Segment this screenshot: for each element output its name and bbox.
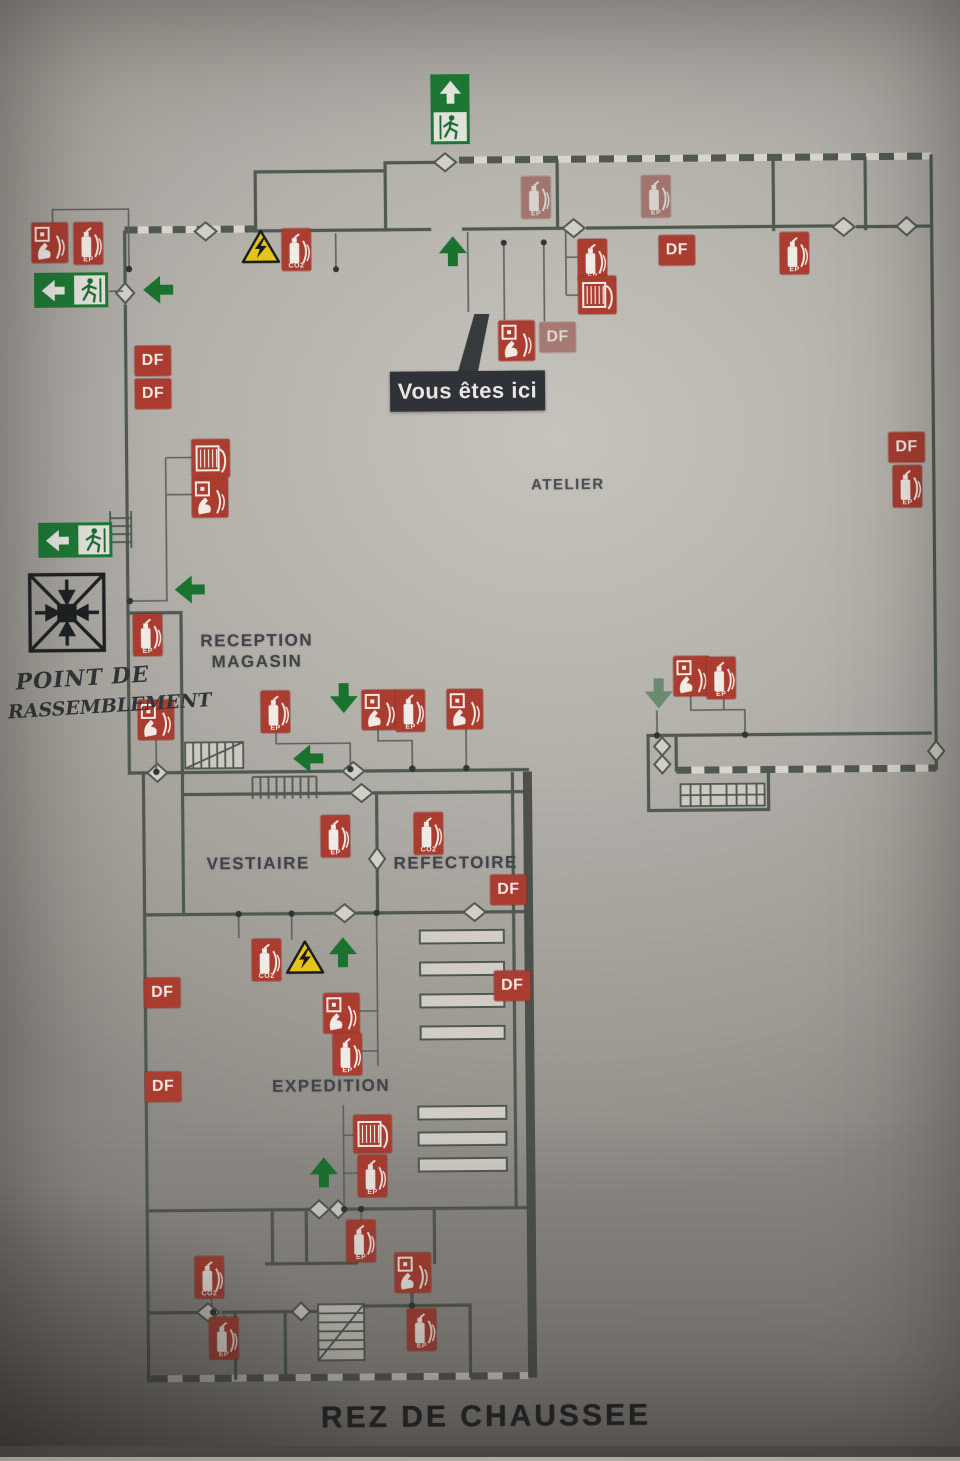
extinguisher-type-label: CO2 [282, 262, 311, 269]
fire-door-df-badge: DF [539, 322, 575, 352]
call-point-glyph [447, 689, 483, 729]
hose-reel-glyph [191, 439, 229, 477]
arrow-glyph [642, 676, 676, 710]
assembly-point-icon [25, 569, 110, 656]
call-point-glyph [362, 690, 398, 730]
manual-call-point-icon [673, 656, 709, 696]
fire-extinguisher-icon: EP [578, 239, 607, 281]
manual-call-point-icon [323, 993, 359, 1033]
evacuation-arrow [642, 676, 676, 710]
df-label: DF [501, 977, 523, 995]
df-label: DF [497, 881, 519, 899]
room-label-vestiaire: VESTIAIRE [193, 853, 323, 874]
manual-call-point-icon [447, 689, 483, 729]
extinguisher-type-label: EP [358, 1189, 387, 1196]
marker-layer: DF DF DF DF DF DF DF DF DF [0, 0, 960, 1461]
electrical-hazard-icon [285, 939, 325, 975]
room-label-reception-magasin: RECEPTION MAGASIN [174, 629, 339, 672]
extinguisher-type-label: EP [780, 266, 809, 273]
room-label-atelier: ATELIER [498, 476, 638, 494]
call-point-glyph [498, 321, 534, 361]
df-label: DF [546, 328, 568, 346]
exit-arrow-up-icon [430, 74, 469, 109]
call-point-glyph [32, 223, 68, 263]
fire-hose-reel-icon [191, 439, 229, 477]
fire-extinguisher-icon: EP [209, 1317, 238, 1359]
manual-call-point-icon [395, 1252, 431, 1292]
arrow-glyph [291, 741, 325, 775]
call-point-glyph [192, 477, 228, 517]
fire-door-df-badge: DF [888, 432, 924, 462]
fire-extinguisher-icon: EP [133, 614, 162, 656]
manual-call-point-icon [362, 690, 398, 730]
call-point-glyph [673, 656, 709, 696]
arrow-glyph [436, 234, 470, 268]
fire-extinguisher-icon: EP [407, 1308, 436, 1350]
extinguisher-type-label: EP [209, 1351, 238, 1358]
fire-door-df-badge: DF [135, 379, 171, 409]
fire-door-df-badge: DF [144, 978, 180, 1008]
electrical-hazard-icon [241, 229, 281, 265]
fire-door-df-badge: DF [659, 235, 695, 265]
hose-reel-glyph [578, 276, 616, 314]
arrow-glyph [141, 273, 175, 307]
fire-door-df-badge: DF [135, 346, 171, 376]
extinguisher-type-label: CO2 [195, 1290, 224, 1297]
df-label: DF [142, 385, 164, 403]
you-are-here-badge: Vous êtes ici [390, 370, 545, 411]
room-label-reception-line2: MAGASIN [174, 650, 339, 672]
fire-extinguisher-icon: EP [358, 1155, 387, 1197]
exit-arrow-left-icon [38, 523, 75, 558]
fire-extinguisher-icon: EP [396, 689, 425, 731]
evacuation-arrow [173, 572, 207, 606]
extinguisher-type-label: EP [641, 209, 670, 216]
hose-reel-glyph [353, 1115, 391, 1153]
call-point-glyph [323, 993, 359, 1033]
co2-extinguisher-icon: CO2 [282, 228, 311, 270]
fire-extinguisher-icon: EP [780, 232, 809, 274]
df-label: DF [666, 241, 688, 259]
fire-extinguisher-icon: EP [641, 175, 670, 217]
room-label-reception-line1: RECEPTION [174, 629, 339, 651]
df-label: DF [142, 352, 164, 370]
extinguisher-type-label: EP [261, 725, 290, 732]
manual-call-point-icon [192, 477, 228, 517]
extinguisher-type-label: EP [347, 1254, 376, 1261]
fire-extinguisher-icon: EP [346, 1220, 375, 1262]
extinguisher-type-label: EP [521, 210, 550, 217]
co2-extinguisher-icon: CO2 [195, 1256, 224, 1298]
emergency-exit-sign-left [34, 272, 108, 311]
df-label: DF [152, 1078, 174, 1096]
call-point-glyph [395, 1252, 431, 1292]
extinguisher-type-label: EP [707, 691, 736, 698]
extinguisher-type-label: EP [893, 499, 922, 506]
manual-call-point-icon [32, 223, 68, 263]
fire-hose-reel-icon [578, 276, 616, 314]
evacuation-arrow [141, 273, 175, 307]
manual-call-point-icon [498, 321, 534, 361]
exit-arrow-left-icon [34, 273, 71, 308]
evacuation-arrow [327, 681, 361, 715]
co2-extinguisher-icon: CO2 [414, 812, 443, 854]
df-label: DF [895, 438, 917, 456]
extinguisher-type-label: EP [396, 723, 425, 730]
df-label: DF [151, 984, 173, 1002]
fire-extinguisher-icon: EP [74, 222, 103, 264]
evacuation-arrow [436, 234, 470, 268]
fire-door-df-badge: DF [490, 875, 526, 905]
fire-extinguisher-icon: EP [321, 815, 350, 857]
evacuation-arrow [307, 1155, 341, 1189]
photo-bottom-edge [0, 1446, 960, 1457]
emergency-exit-sign-up [430, 74, 470, 144]
extinguisher-type-label: EP [74, 256, 103, 263]
extinguisher-type-label: CO2 [252, 973, 281, 980]
arrow-glyph [307, 1155, 341, 1189]
extinguisher-type-label: EP [333, 1067, 362, 1074]
evacuation-arrow [326, 935, 360, 969]
room-label-expedition: EXPEDITION [261, 1076, 401, 1097]
extinguisher-type-label: EP [321, 849, 350, 856]
emergency-exit-sign-left [38, 522, 112, 561]
room-label-refectoire: REFECTOIRE [383, 853, 528, 874]
evacuation-floor-plan: DF DF DF DF DF DF DF DF DF [0, 0, 960, 1461]
fire-extinguisher-icon: EP [706, 657, 735, 699]
fire-hose-reel-icon [353, 1115, 391, 1153]
extinguisher-type-label: EP [407, 1342, 436, 1349]
arrow-glyph [326, 935, 360, 969]
fire-door-df-badge: DF [145, 1072, 181, 1102]
fire-extinguisher-icon: EP [521, 176, 550, 218]
arrow-glyph [173, 572, 207, 606]
fire-extinguisher-icon: EP [893, 465, 922, 507]
running-man-icon [71, 272, 108, 307]
arrow-glyph [327, 681, 361, 715]
fire-extinguisher-icon: EP [333, 1033, 362, 1075]
co2-extinguisher-icon: CO2 [252, 939, 281, 981]
evacuation-arrow [291, 741, 325, 775]
extinguisher-type-label: EP [133, 648, 162, 655]
running-man-icon [431, 109, 470, 144]
fire-extinguisher-icon: EP [261, 691, 290, 733]
fire-door-df-badge: DF [494, 971, 530, 1001]
running-man-icon [75, 522, 112, 557]
